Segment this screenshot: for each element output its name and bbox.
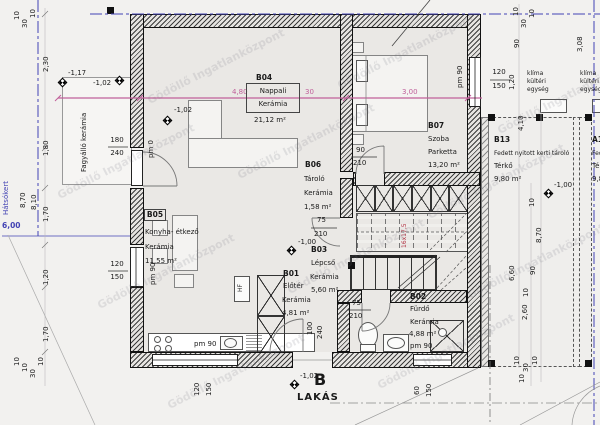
bath-door-swing (362, 303, 390, 331)
dim: 10 (21, 363, 29, 372)
room-area-b07: 13,20 m² (428, 161, 460, 169)
floor-plan-canvas: 10 30 10 2,30 1,80 8,70 8,10 1,70 1,20 1… (0, 0, 600, 425)
backyard-width: 6,00 (2, 222, 21, 230)
door-dim: 210 (314, 230, 327, 238)
room-id-b01: B01 (283, 270, 299, 278)
ac-label: klíma (527, 70, 543, 77)
door-dim: 100 (306, 322, 314, 335)
dim: 2,30 (42, 56, 50, 72)
dim: 6,60 (508, 265, 516, 281)
room-floor-b03: Kerámia (310, 273, 339, 281)
door-dim: 90 (356, 146, 365, 154)
dim: 30 (520, 19, 528, 28)
room-floor-b04: Kerámia (247, 100, 299, 108)
dim: 1,70 (42, 206, 50, 222)
room-floor-a13: Térkő (592, 162, 600, 170)
dim: 10 (528, 9, 536, 18)
apartment-title: LAKÁS (297, 392, 339, 403)
dim: 10 (512, 7, 520, 16)
dim: 60 (413, 386, 421, 395)
level-text: -1,02 (93, 79, 111, 87)
dim: 90 (513, 39, 521, 48)
room-id-b06: B06 (305, 161, 321, 169)
dim: 150 (425, 384, 433, 397)
parapet-label: pm 90 (194, 340, 216, 348)
dim: 30 (21, 19, 29, 28)
dim-pink: 3,00 (402, 88, 418, 96)
dim: 10 (518, 374, 526, 383)
dim: 150 (108, 273, 126, 281)
dim: 10 (29, 9, 37, 18)
dim: 1,70 (42, 326, 50, 342)
level-text: -1,17 (68, 69, 86, 77)
garden-path-line (8, 235, 95, 425)
dim: 30 (522, 363, 530, 372)
door-dim: 240 (316, 326, 324, 339)
dim: 30 (29, 369, 37, 378)
room-floor-b01: Kerámia (282, 296, 311, 304)
dim: 10 (528, 198, 536, 207)
room-floor-b02: Kerámia (410, 318, 439, 326)
room-label-box-b04: Nappali Kerámia (246, 83, 300, 113)
room-name-b04: Nappali (247, 87, 299, 95)
ac-label: klíma (580, 70, 596, 77)
walkway-lines (355, 368, 600, 425)
dim: 150 (205, 383, 213, 396)
room-name-b03: Lépcső (311, 259, 335, 267)
room-name-b05: Konyha- étkező (145, 228, 199, 236)
dim: 8,70 (19, 192, 27, 208)
dim: 120 (490, 68, 508, 76)
room-id-b02: B02 (410, 293, 426, 301)
ac-label: kültéri (580, 78, 599, 85)
dim: 10 (531, 356, 539, 365)
level-text: -1,02 (174, 106, 192, 114)
parapet-label: pm 90 (410, 342, 432, 350)
door-dim: 75 (317, 216, 326, 224)
front-door-swing (270, 319, 303, 352)
dim: 1,20 (508, 74, 516, 90)
parapet-label: pm 90 (456, 66, 464, 88)
door-dim: 210 (353, 159, 366, 167)
room-id-b03: B03 (311, 246, 327, 254)
leader-line (392, 0, 430, 46)
room-id-b05: B05 (145, 211, 165, 219)
dim: 10 (13, 11, 21, 20)
room-name-b13: Fedett nyitott kerti tároló (494, 150, 569, 157)
stair-note: 16x17,5 (401, 223, 408, 248)
dim: 240 (108, 149, 126, 157)
parapet-label: pm 0 (147, 140, 155, 158)
room-area-b03: 5,60 m² (311, 286, 338, 294)
room-id-a13: A13 (592, 136, 600, 144)
room-id-b07: B07 (428, 122, 444, 130)
room-floor-b05: Kerámia (145, 243, 174, 251)
level-text: -1,00 (554, 181, 572, 189)
dim: 180 (108, 136, 126, 144)
room-name-a13: Fedett nyitott kerti tároló (592, 150, 600, 157)
stair-winder-lines (356, 214, 468, 290)
room-name-b06: Tároló (304, 175, 325, 183)
backyard-label: Hátsókert (2, 181, 10, 215)
room-id-b13: B13 (494, 136, 510, 144)
dim: 8,10 (30, 194, 38, 210)
dim-chain-east (519, 4, 541, 386)
ac-label: egység (580, 86, 600, 93)
room-area-b02: 4,88 m² (409, 330, 436, 338)
room-area-b05: 11,55 m² (145, 257, 177, 265)
dim: 3,08 (576, 36, 584, 52)
room-name-b02: Fürdő (410, 305, 430, 313)
room-floor-b06: Kerámia (304, 189, 333, 197)
plan-linework (0, 0, 600, 425)
dim: 1,20 (42, 269, 50, 285)
dim: 90 (529, 266, 537, 275)
room-area-b13: 9,80 m² (494, 175, 521, 183)
room-area-b04: 21,12 m² (254, 116, 286, 124)
dim: 120 (193, 383, 201, 396)
dim: 2,60 (521, 304, 529, 320)
room-area-b01: 4,81 m² (282, 309, 309, 317)
dim: 120 (108, 260, 126, 268)
room-name-b07: Szoba (428, 135, 449, 143)
ac-label: egység (527, 86, 549, 93)
dim: 4,10 (517, 115, 525, 131)
dim: 10 (522, 288, 530, 297)
dim: 150 (490, 82, 508, 90)
room-area-b06: 1,58 m² (304, 203, 331, 211)
terrace-finish-label: Fagyálló kerámia (80, 113, 88, 172)
dim: 10 (513, 356, 521, 365)
dim: 8,70 (535, 227, 543, 243)
room-area-a13: 9,80 m² (592, 175, 600, 183)
room-floor-b13: Térkő (494, 162, 513, 170)
ac-label: kültéri (527, 78, 546, 85)
room-id-b04: B04 (256, 74, 272, 82)
door-dim: 210 (349, 312, 362, 320)
room-floor-b07: Parketta (428, 148, 457, 156)
stair-break-line (398, 255, 440, 290)
dim: 10 (13, 357, 21, 366)
room-name-b01: Előtér (283, 282, 304, 290)
parapet-label: pm 90 (149, 263, 157, 285)
dim: 10 (37, 357, 45, 366)
room-label-box-b05: B05 (144, 209, 166, 221)
dim-pink: 30 (305, 88, 314, 96)
driveway-arc (572, 386, 600, 425)
hf-label: HF (237, 284, 244, 292)
dim: 1,80 (42, 140, 50, 156)
apartment-letter: B (314, 370, 326, 389)
door-dim: 75 (352, 299, 361, 307)
